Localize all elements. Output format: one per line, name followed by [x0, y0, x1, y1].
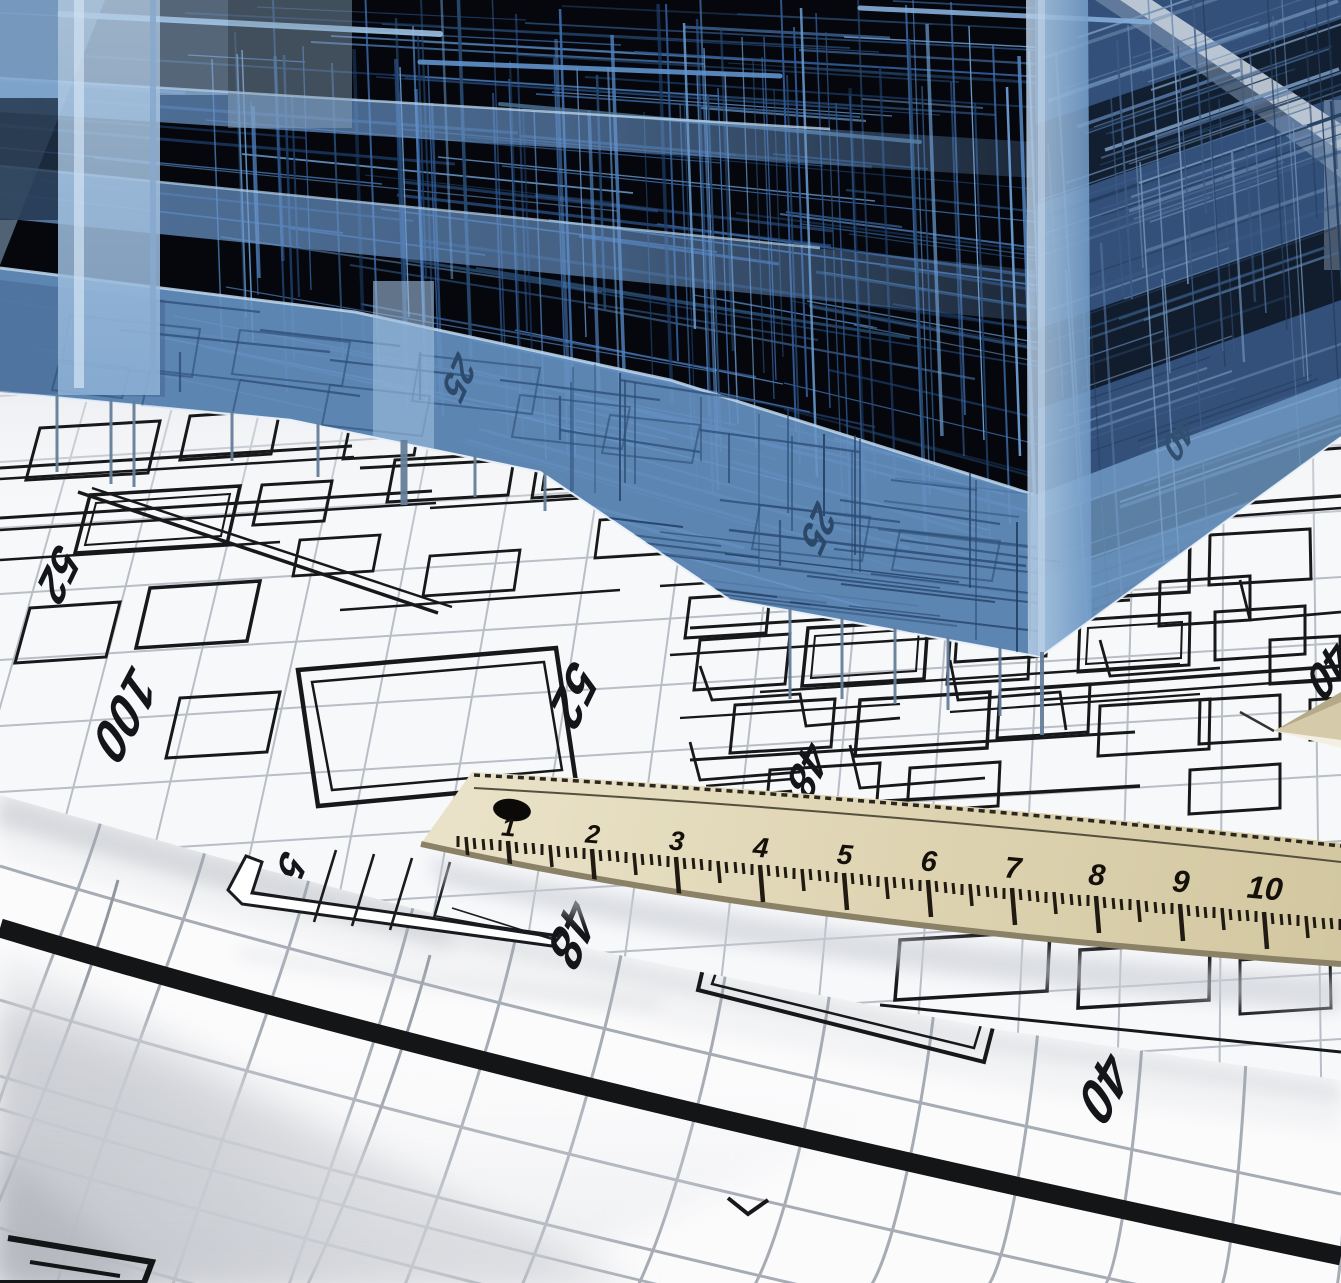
svg-text:4: 4 — [751, 831, 771, 863]
svg-text:1: 1 — [500, 811, 517, 842]
svg-text:2: 2 — [583, 818, 602, 849]
svg-text:5: 5 — [836, 838, 855, 870]
svg-text:8: 8 — [1087, 858, 1107, 892]
svg-text:10: 10 — [1246, 869, 1285, 908]
svg-text:3: 3 — [668, 825, 686, 856]
